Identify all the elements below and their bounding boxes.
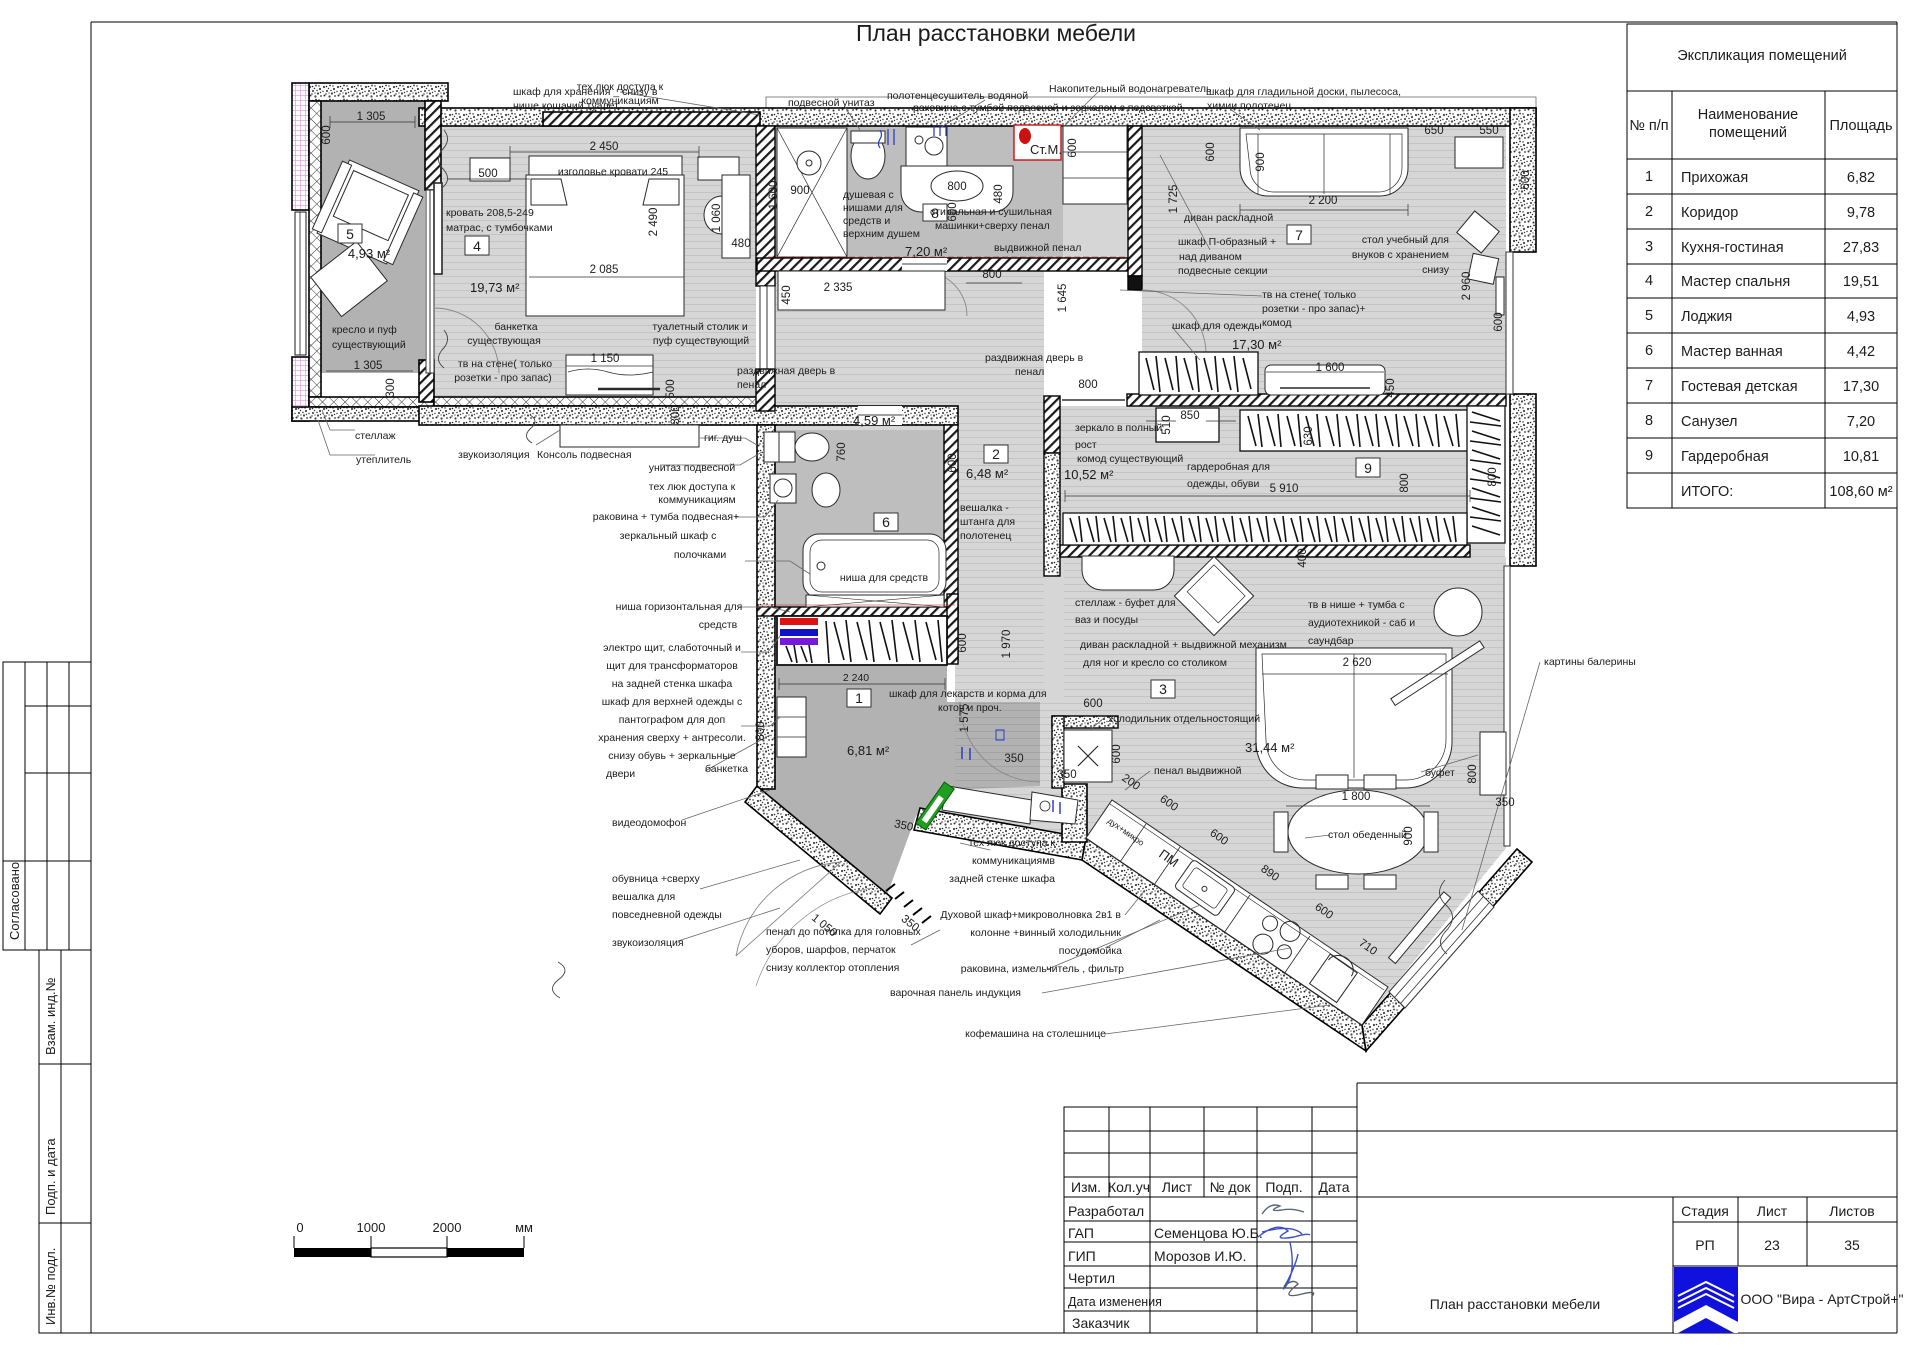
svg-text:Экспликация помещений: Экспликация помещений [1677,48,1847,64]
svg-text:6: 6 [882,514,890,530]
svg-text:диван раскладной: диван раскладной [1184,212,1273,224]
svg-text:буфет: буфет [1425,767,1455,779]
svg-text:600: 600 [1493,312,1505,331]
svg-text:630: 630 [1303,426,1315,445]
svg-text:3: 3 [1645,239,1653,255]
svg-text:2 085: 2 085 [590,264,619,276]
svg-text:двери: двери [606,768,635,780]
svg-text:600: 600 [1067,138,1079,157]
svg-text:1 305: 1 305 [357,111,386,123]
svg-text:Согласовано: Согласовано [7,862,22,940]
svg-text:№ док: № док [1210,1179,1252,1195]
svg-text:подвесной унитаз: подвесной унитаз [788,97,875,109]
svg-text:800: 800 [1467,764,1479,783]
svg-text:500: 500 [478,168,497,180]
svg-text:котов и проч.: котов и проч. [938,702,1002,714]
svg-text:тв на стене( только: тв на стене( только [458,358,552,370]
svg-text:кресло и пуф: кресло и пуф [332,324,397,336]
svg-text:звукоизоляция: звукоизоляция [458,449,530,461]
svg-text:варочная панель индукция: варочная панель индукция [890,987,1021,999]
svg-text:электро щит, слаботочный и: электро щит, слаботочный и [603,642,741,654]
svg-text:1 600: 1 600 [768,181,780,210]
svg-text:1 305: 1 305 [354,360,383,372]
svg-text:нишами для: нишами для [843,202,903,214]
svg-text:600: 600 [947,453,959,472]
svg-text:обувница +сверху: обувница +сверху [612,873,701,885]
svg-text:510: 510 [1161,415,1173,434]
svg-text:1 645: 1 645 [1057,284,1069,313]
svg-text:Площадь: Площадь [1829,118,1892,134]
svg-text:600: 600 [1083,698,1102,710]
svg-text:гардеробная для: гардеробная для [1187,461,1270,473]
svg-text:2: 2 [992,446,1000,462]
svg-text:800: 800 [947,181,966,193]
svg-text:2 335: 2 335 [824,282,853,294]
svg-text:Коридор: Коридор [1681,205,1738,221]
svg-text:600: 600 [957,633,969,652]
svg-text:задней стенке шкафа: задней стенке шкафа [949,873,1055,885]
svg-text:2 450: 2 450 [590,141,619,153]
svg-text:6,81 м²: 6,81 м² [847,743,890,758]
svg-text:картины балерины: картины балерины [1544,656,1636,668]
svg-text:помещений: помещений [1709,125,1787,141]
svg-text:ГИП: ГИП [1068,1248,1096,1264]
svg-text:Листов: Листов [1829,1203,1875,1219]
svg-text:2 960: 2 960 [1461,272,1473,301]
svg-text:банкетка: банкетка [705,763,748,775]
svg-text:8: 8 [1645,413,1653,429]
svg-text:850: 850 [1180,410,1199,422]
svg-text:раковина с тумбой подвесной и: раковина с тумбой подвесной и зеркалом с… [913,102,1183,114]
svg-text:7: 7 [1295,227,1303,243]
svg-text:4,42: 4,42 [1847,344,1875,360]
svg-text:ваз и посуды: ваз и посуды [1075,614,1138,626]
svg-text:400: 400 [1297,548,1309,567]
svg-text:1 150: 1 150 [591,353,620,365]
svg-text:существующий: существующий [332,339,406,351]
svg-text:1 725: 1 725 [1168,185,1180,214]
svg-text:350: 350 [1004,753,1023,765]
svg-text:5 910: 5 910 [1270,483,1299,495]
svg-text:пенал выдвижной: пенал выдвижной [1154,765,1242,777]
svg-text:9: 9 [1645,448,1653,464]
svg-text:550: 550 [1479,125,1498,137]
svg-text:шкаф П-образный +: шкаф П-образный + [1178,236,1276,248]
svg-text:План расстановки мебели: План расстановки мебели [1430,1296,1600,1312]
svg-text:Изм.: Изм. [1071,1179,1101,1195]
svg-text:колонне +винный холодильник: колонне +винный холодильник [970,927,1121,939]
svg-text:тв в нише + тумба с: тв в нише + тумба с [1308,599,1405,611]
svg-text:9,78: 9,78 [1847,205,1875,221]
svg-text:ниша горизонтальная для: ниша горизонтальная для [616,601,743,613]
svg-text:800: 800 [1078,379,1097,391]
svg-text:полотенцесушитель водяной: полотенцесушитель водяной [887,90,1028,102]
svg-text:6,82: 6,82 [1847,170,1875,186]
svg-text:17,30 м²: 17,30 м² [1232,337,1282,352]
svg-text:посудомойка: посудомойка [1059,945,1122,957]
svg-text:полотенец: полотенец [960,530,1011,542]
svg-text:5: 5 [346,226,354,242]
svg-text:стол обеденный: стол обеденный [1328,829,1407,841]
svg-text:6: 6 [1645,343,1653,359]
svg-text:Ст.М.: Ст.М. [1030,142,1062,157]
svg-text:коммуникациямв: коммуникациямв [972,855,1055,867]
svg-text:27,83: 27,83 [1843,240,1879,256]
svg-text:для ног и кресло со столиком: для ног и кресло со столиком [1083,657,1227,669]
svg-text:19,73 м²: 19,73 м² [470,280,520,295]
svg-text:Лоджия: Лоджия [1681,309,1732,325]
svg-text:существующая: существующая [467,335,541,347]
svg-text:Семенцова Ю.Б.: Семенцова Ю.Б. [1154,1225,1263,1241]
svg-text:35: 35 [1844,1237,1860,1253]
svg-text:900: 900 [790,185,809,197]
svg-text:2 200: 2 200 [1309,195,1338,207]
svg-text:химии полотенец: химии полотенец [1207,100,1291,112]
svg-text:Гостевая детская: Гостевая детская [1681,379,1798,395]
svg-text:2000: 2000 [433,1220,462,1235]
svg-text:полочками: полочками [674,549,727,561]
svg-text:тв на стене( только: тв на стене( только [1262,289,1356,301]
svg-text:снизу обувь + зеркальные: снизу обувь + зеркальные [608,750,736,762]
svg-text:23: 23 [1764,1237,1780,1253]
svg-text:розетки - про запас)+: розетки - про запас)+ [1262,303,1366,315]
svg-text:раздвижная дверь в: раздвижная дверь в [985,352,1084,364]
svg-text:звукоизоляция: звукоизоляция [612,937,684,949]
svg-text:7: 7 [1645,378,1653,394]
svg-text:повседневной одежды: повседневной одежды [612,909,722,921]
svg-text:План расстановки мебели: План расстановки мебели [856,20,1136,46]
svg-text:19,51: 19,51 [1843,274,1879,290]
svg-text:шкаф для гладильной доски, пыл: шкаф для гладильной доски, пылесоса, [1206,86,1401,98]
svg-text:изголовье кровати 245: изголовье кровати 245 [558,166,668,178]
svg-text:Лист: Лист [1757,1203,1788,1219]
svg-text:вешалка -: вешалка - [960,502,1009,514]
svg-text:тех люк доступа к: тех люк доступа к [969,837,1056,849]
svg-text:пуф существующий: пуф существующий [653,335,749,347]
svg-text:щит для трансформаторов: щит для трансформаторов [606,660,738,672]
svg-text:6,48 м²: 6,48 м² [966,466,1009,481]
svg-text:31,44 м²: 31,44 м² [1245,740,1295,755]
svg-text:900: 900 [1255,152,1267,171]
svg-text:пенал до потолка для головных: пенал до потолка для головных [766,926,921,938]
svg-text:тех люк доступа к: тех люк доступа к [577,81,664,93]
svg-text:2 620: 2 620 [1343,657,1372,669]
svg-text:душевая с: душевая с [843,189,894,201]
svg-text:шкаф для лекарств и корма для: шкаф для лекарств и корма для [889,688,1047,700]
svg-text:7,20 м²: 7,20 м² [905,244,948,259]
svg-text:Мастер ванная: Мастер ванная [1681,344,1783,360]
svg-text:раковина + тумба подвесная+: раковина + тумба подвесная+ [593,511,739,523]
svg-text:480: 480 [993,184,1005,203]
svg-text:холодильник отдельностоящий: холодильник отдельностоящий [1108,713,1260,725]
svg-text:17,30: 17,30 [1843,379,1879,395]
svg-text:Кухня-гостиная: Кухня-гостиная [1681,240,1784,256]
svg-text:ниша для средств: ниша для средств [840,572,929,584]
svg-text:800: 800 [982,269,1001,281]
svg-text:кровать 208,5-249: кровать 208,5-249 [446,207,534,219]
svg-text:Морозов И.Ю.: Морозов И.Ю. [1154,1248,1246,1264]
svg-text:Подп. и дата: Подп. и дата [43,1138,58,1215]
svg-text:Инв.№ подл.: Инв.№ подл. [43,1248,58,1325]
svg-text:саундбар: саундбар [1308,635,1354,647]
svg-text:зеркало в полный: зеркало в полный [1075,422,1162,434]
svg-text:Прихожая: Прихожая [1681,170,1748,186]
svg-text:300: 300 [670,405,682,424]
svg-text:стиральная и сушильная: стиральная и сушильная [930,206,1052,218]
svg-text:Санузел: Санузел [1681,414,1738,430]
svg-text:480: 480 [731,238,750,250]
svg-text:450: 450 [781,285,793,304]
svg-text:раковина, измельчитель , фильт: раковина, измельчитель , фильтр [961,963,1124,975]
svg-text:7,20: 7,20 [1847,414,1875,430]
svg-text:средств: средств [699,619,738,631]
svg-text:Чертил: Чертил [1068,1270,1115,1286]
svg-text:средств и: средств и [843,215,890,227]
svg-text:4,59 м²: 4,59 м² [853,413,896,428]
svg-text:2 490: 2 490 [648,208,660,237]
svg-text:унитаз подвесной: унитаз подвесной [649,462,736,474]
svg-text:диван раскладной + выдвижной м: диван раскладной + выдвижной механизм [1080,639,1287,651]
svg-text:4: 4 [473,238,481,254]
svg-text:видеодомофон: видеодомофон [612,817,687,829]
svg-text:мм: мм [515,1220,533,1235]
svg-text:450: 450 [1385,378,1397,397]
svg-text:Заказчик: Заказчик [1072,1315,1130,1331]
svg-text:Стадия: Стадия [1681,1203,1729,1219]
svg-text:стеллаж - буфет для: стеллаж - буфет для [1075,597,1176,609]
svg-text:Дата: Дата [1318,1179,1349,1195]
svg-text:над диваном: над диваном [1179,251,1242,263]
svg-text:760: 760 [836,442,848,461]
svg-text:600: 600 [321,125,333,144]
svg-text:1 800: 1 800 [1342,791,1371,803]
svg-text:650: 650 [1424,125,1443,137]
svg-text:Накопительный водонагреватель: Накопительный водонагреватель [1049,83,1212,95]
svg-text:пантографом для доп: пантографом для доп [619,714,726,726]
svg-text:1000: 1000 [357,1220,386,1235]
svg-text:туалетный столик и: туалетный столик и [652,321,748,333]
svg-text:108,60 м²: 108,60 м² [1829,484,1892,500]
svg-text:комод: комод [1262,317,1292,329]
svg-text:1 970: 1 970 [1001,630,1013,659]
svg-text:10,81: 10,81 [1843,449,1879,465]
svg-text:коммуникациям: коммуникациям [581,95,658,107]
svg-text:1 600: 1 600 [1316,362,1345,374]
svg-text:рост: рост [1075,439,1097,451]
svg-text:4: 4 [1645,273,1653,289]
svg-text:5: 5 [1645,308,1653,324]
svg-text:ГАП: ГАП [1068,1225,1094,1241]
svg-text:800: 800 [1487,467,1499,486]
svg-text:ИТОГО:: ИТОГО: [1681,484,1733,500]
svg-text:снизу: снизу [1422,264,1450,276]
svg-text:800: 800 [755,721,767,740]
svg-text:подвесные секции: подвесные секции [1178,265,1268,277]
svg-text:4,93: 4,93 [1847,309,1875,325]
svg-text:10,52 м²: 10,52 м² [1064,467,1114,482]
svg-text:матрас, с тумбочками: матрас, с тумбочками [446,222,553,234]
svg-text:верхним душем: верхним душем [843,228,920,240]
svg-text:внуков с хранением: внуков с хранением [1352,249,1449,261]
svg-text:коммуникациям: коммуникациям [658,494,735,506]
svg-text:№ п/п: № п/п [1629,118,1668,134]
svg-text:350: 350 [1057,769,1076,781]
svg-text:0: 0 [296,1220,303,1235]
svg-text:снизу коллектор отопления: снизу коллектор отопления [766,962,899,974]
svg-text:Гардеробная: Гардеробная [1681,449,1769,465]
svg-text:раздвижная дверь в: раздвижная дверь в [737,365,836,377]
svg-text:Разработал: Разработал [1068,1203,1144,1219]
svg-text:Дата изменения: Дата изменения [1068,1295,1162,1309]
svg-text:аудиотехникой - саб и: аудиотехникой - саб и [1308,617,1415,629]
svg-text:Взам. инд.№: Взам. инд.№ [43,977,58,1055]
svg-text:банкетка: банкетка [494,321,537,333]
svg-text:9: 9 [1364,460,1372,476]
svg-text:зеркальный шкаф с: зеркальный шкаф с [620,530,717,542]
svg-text:машинки+сверху пенал: машинки+сверху пенал [935,220,1050,232]
svg-text:тех люк доступа к: тех люк доступа к [649,481,736,493]
svg-text:2 240: 2 240 [843,672,869,684]
svg-text:пенал: пенал [737,379,766,391]
svg-text:розетки - про запас): розетки - про запас) [454,372,552,384]
svg-text:Наименование: Наименование [1698,107,1799,123]
svg-text:Консоль подвесная: Консоль подвесная [537,449,632,461]
svg-text:600: 600 [1520,170,1532,189]
svg-text:одежды, обуви: одежды, обуви [1187,478,1259,490]
svg-text:кофемашина на столешнице: кофемашина на столешнице [965,1028,1106,1040]
svg-text:350: 350 [1495,797,1514,809]
svg-text:на задней стенка шкафа: на задней стенка шкафа [612,678,733,690]
svg-text:ООО "Вира - АртСтрой+": ООО "Вира - АртСтрой+" [1741,1291,1904,1307]
svg-text:3: 3 [1159,681,1167,697]
svg-text:шкаф для верхней одежды с: шкаф для верхней одежды с [602,696,743,708]
svg-text:вешалка для: вешалка для [612,891,675,903]
svg-text:800: 800 [1399,473,1411,492]
svg-text:комод существующий: комод существующий [1077,453,1183,465]
svg-text:4,93 м²: 4,93 м² [348,246,391,261]
svg-text:уборов, шарфов, перчаток: уборов, шарфов, перчаток [766,944,896,956]
svg-text:Мастер спальня: Мастер спальня [1681,274,1790,290]
svg-text:хранения сверху + антресоли.: хранения сверху + антресоли. [598,732,746,744]
svg-text:600: 600 [1111,744,1123,763]
svg-text:утеплитель: утеплитель [356,454,412,466]
svg-text:выдвижной пенал: выдвижной пенал [994,242,1081,254]
svg-text:300: 300 [385,378,397,397]
svg-text:1: 1 [1645,169,1653,185]
svg-text:Лист: Лист [1162,1179,1193,1195]
svg-text:РП: РП [1695,1237,1714,1253]
svg-text:шкаф для одежды: шкаф для одежды [1172,320,1262,332]
svg-text:пенал: пенал [1015,366,1044,378]
svg-text:1: 1 [855,690,863,706]
svg-text:Духовой шкаф+микроволновка 2в1: Духовой шкаф+микроволновка 2в1 в [940,909,1121,921]
svg-text:стол учебный для: стол учебный для [1362,234,1449,246]
svg-text:стеллаж: стеллаж [355,430,396,442]
svg-text:гиг. душ: гиг. душ [704,432,742,444]
svg-text:2: 2 [1645,204,1653,220]
svg-text:штанга для: штанга для [960,516,1015,528]
svg-text:600: 600 [1205,142,1217,161]
svg-text:Подп.: Подп. [1265,1179,1302,1195]
svg-text:1 060: 1 060 [711,204,723,233]
svg-text:Кол.уч: Кол.уч [1108,1179,1150,1195]
svg-text:500: 500 [665,379,677,398]
